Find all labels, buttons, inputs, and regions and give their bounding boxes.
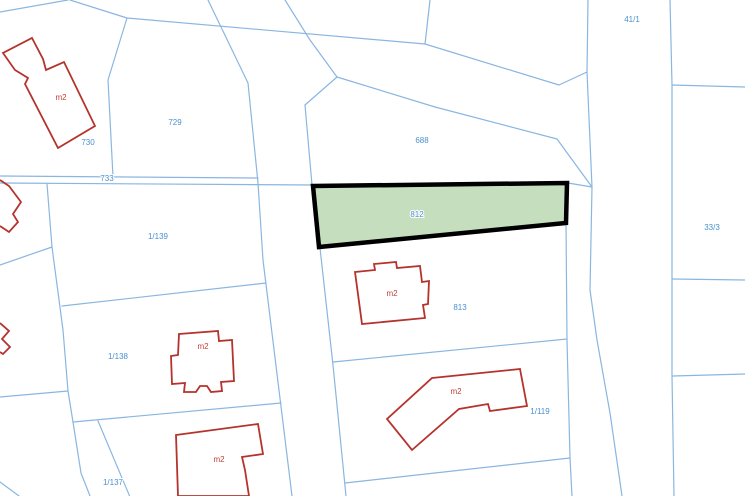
parcel-number-label-730: 730: [81, 138, 95, 147]
parcel-boundary-line: [425, 0, 430, 44]
parcel-boundary-line: [108, 18, 127, 177]
building-area-label: m2: [213, 455, 225, 464]
parcel-boundary-line: [672, 85, 745, 87]
parcel-number-label-1-119: 1/119: [530, 407, 550, 416]
parcel-boundary-line: [0, 247, 52, 265]
parcel-boundary-line: [62, 283, 266, 306]
parcel-boundary-line: [673, 374, 745, 376]
parcel-number-label-733: 733: [100, 174, 114, 183]
parcel-boundary-line: [208, 0, 292, 496]
parcel-boundary-line: [0, 0, 68, 12]
parcel-boundary-line: [47, 184, 90, 496]
parcel-boundary-line: [587, 0, 622, 496]
parcel-boundary-line: [0, 391, 68, 397]
highlight-layer: [313, 183, 567, 247]
parcel-number-label-688: 688: [415, 136, 429, 145]
parcel-boundary-line: [70, 0, 587, 85]
parcel-number-label-1-139: 1/139: [148, 232, 169, 241]
building-outline: [0, 323, 10, 354]
parcel-boundary-line: [285, 0, 337, 77]
labels-layer: 7307297331/1391/1381/1376888128131/11941…: [55, 15, 720, 487]
parcel-boundary-line: [672, 279, 745, 280]
parcel-boundary-line: [305, 77, 337, 105]
parcel-boundary-line: [568, 183, 592, 187]
parcel-number-label-1-138: 1/138: [108, 352, 129, 361]
building-area-label: m2: [450, 387, 462, 396]
parcel-boundary-line: [305, 105, 346, 496]
parcel-boundary-line: [333, 339, 567, 362]
parcel-number-label-1-137: 1/137: [103, 478, 124, 487]
parcel-number-label-812: 812: [410, 210, 424, 219]
parcel-boundary-line: [566, 223, 572, 496]
building-outline: [387, 369, 527, 450]
building-area-label: m2: [197, 342, 209, 351]
boundary-lines-layer: [0, 0, 745, 496]
parcel-number-label-33-3: 33/3: [704, 223, 720, 232]
highlighted-parcel-812[interactable]: [313, 183, 567, 247]
parcel-boundary-line: [670, 0, 674, 496]
parcel-boundary-line: [557, 139, 592, 187]
parcel-number-label-729: 729: [168, 118, 182, 127]
parcel-boundary-line: [345, 458, 570, 483]
building-outline: [3, 38, 95, 148]
parcel-boundary-line: [0, 176, 258, 178]
parcel-boundary-line: [337, 77, 557, 139]
building-area-label: m2: [386, 289, 398, 298]
parcel-number-label-813: 813: [453, 303, 467, 312]
cadastral-map[interactable]: 7307297331/1391/1381/1376888128131/11941…: [0, 0, 745, 496]
building-area-label: m2: [55, 93, 67, 102]
parcel-number-label-41-1: 41/1: [624, 15, 640, 24]
map-svg: 7307297331/1391/1381/1376888128131/11941…: [0, 0, 745, 496]
building-outline: [171, 331, 234, 392]
parcel-boundary-line: [73, 403, 281, 422]
building-outline: [0, 180, 21, 232]
parcel-boundary-line: [0, 482, 19, 496]
